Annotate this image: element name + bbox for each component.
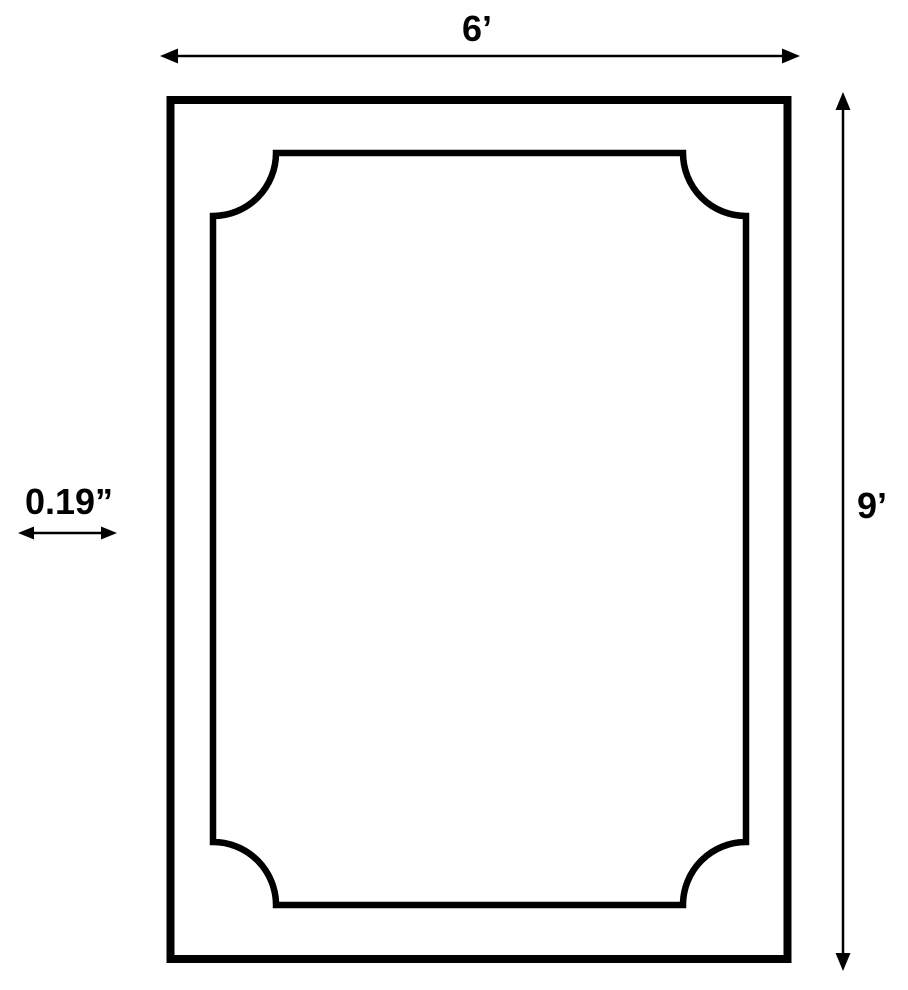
- thickness-dimension-label: 0.19”: [1, 484, 137, 520]
- inner-scalloped-border: [213, 153, 746, 905]
- arrow-left-head-icon: [18, 527, 34, 540]
- height-dimension-label: 9’: [842, 488, 902, 524]
- outer-rectangle: [171, 100, 788, 959]
- arrow-right-head-icon: [101, 527, 117, 540]
- arrow-up-head-icon: [836, 92, 851, 110]
- height-dimension-arrow: [836, 92, 851, 971]
- width-dimension-arrow: [160, 49, 800, 64]
- arrow-left-head-icon: [160, 49, 178, 64]
- thickness-dimension-arrow: [18, 527, 117, 540]
- diagram-canvas: 6’ 9’ 0.19”: [0, 0, 908, 990]
- arrow-down-head-icon: [836, 953, 851, 971]
- width-dimension-label: 6’: [447, 11, 507, 47]
- arrow-right-head-icon: [782, 49, 800, 64]
